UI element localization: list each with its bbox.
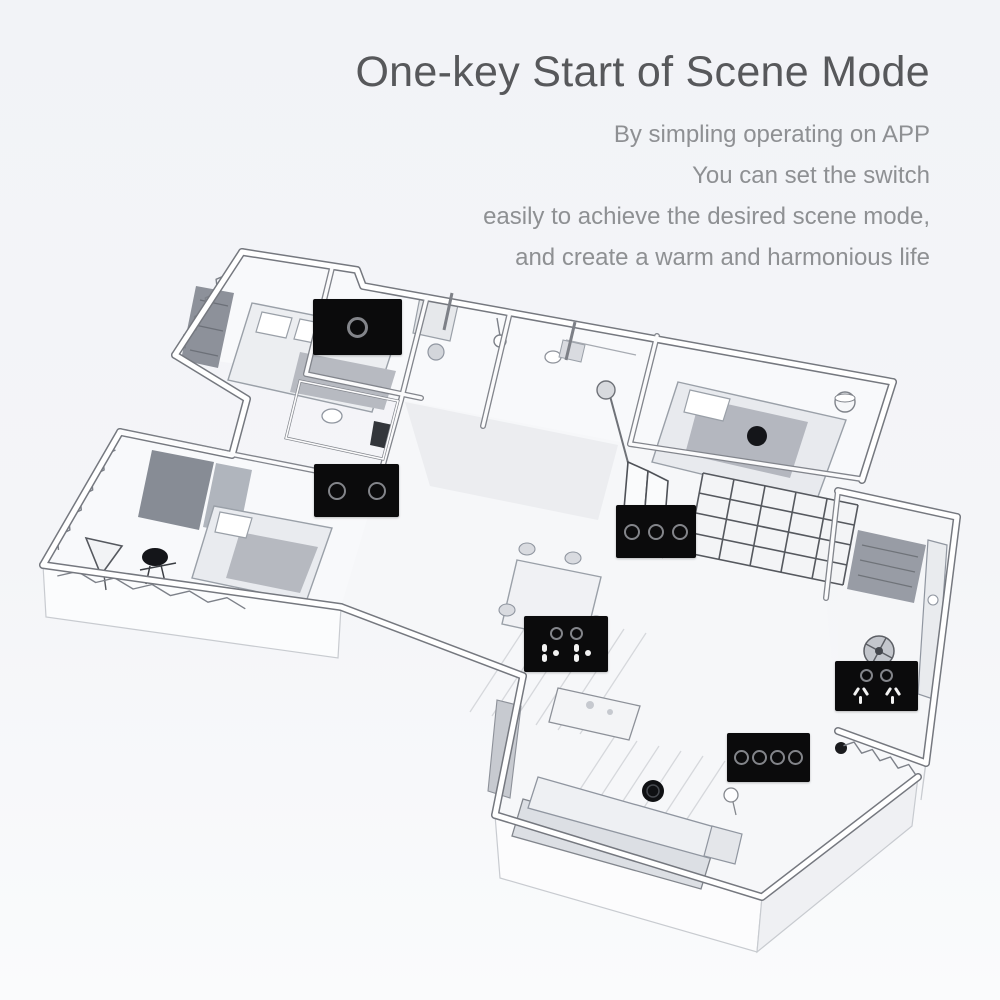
socket-pin-holes (883, 686, 903, 704)
switch-2gang-left-bedroom (314, 464, 399, 517)
touch-button-ring (672, 524, 688, 540)
touch-button-ring (328, 482, 346, 500)
touch-button-ring (788, 750, 803, 765)
touch-button-ring (880, 669, 893, 682)
subtitle-line-3: easily to achieve the desired scene mode… (355, 196, 930, 237)
touch-button-ring (368, 482, 386, 500)
subtitle-line-1: By simpling operating on APP (355, 114, 930, 155)
touch-button-ring (860, 669, 873, 682)
header: One-key Start of Scene Mode By simpling … (355, 48, 930, 278)
marketing-image: One-key Start of Scene Mode By simpling … (0, 0, 1000, 1000)
touch-button-ring (770, 750, 785, 765)
touch-button-ring (734, 750, 749, 765)
switch-3gang-study (616, 505, 696, 558)
touch-button-ring (624, 524, 640, 540)
touch-button-ring (648, 524, 664, 540)
touch-button-ring (550, 627, 563, 640)
socket-switch-dining (524, 616, 608, 672)
socket-pin-holes (572, 644, 592, 662)
page-title: One-key Start of Scene Mode (355, 48, 930, 97)
socket-pin-holes (540, 644, 560, 662)
lamp-globe (724, 788, 738, 802)
touch-button-ring (347, 317, 368, 338)
subtitle-line-2: You can set the switch (355, 155, 930, 196)
floor-lamp-shade (597, 381, 615, 399)
touch-button-ring (752, 750, 767, 765)
switch-1gang-top-bedroom (313, 299, 402, 355)
socket-switch-kitchen (835, 661, 918, 711)
socket-pin-holes (851, 686, 871, 704)
touch-button-ring (570, 627, 583, 640)
subtitle-line-4: and create a warm and harmonious life (355, 237, 930, 278)
small-dark-dot (835, 742, 847, 754)
round-stool-dark (747, 426, 767, 446)
switch-4gang-living (727, 733, 810, 782)
robot-vacuum (642, 780, 664, 802)
